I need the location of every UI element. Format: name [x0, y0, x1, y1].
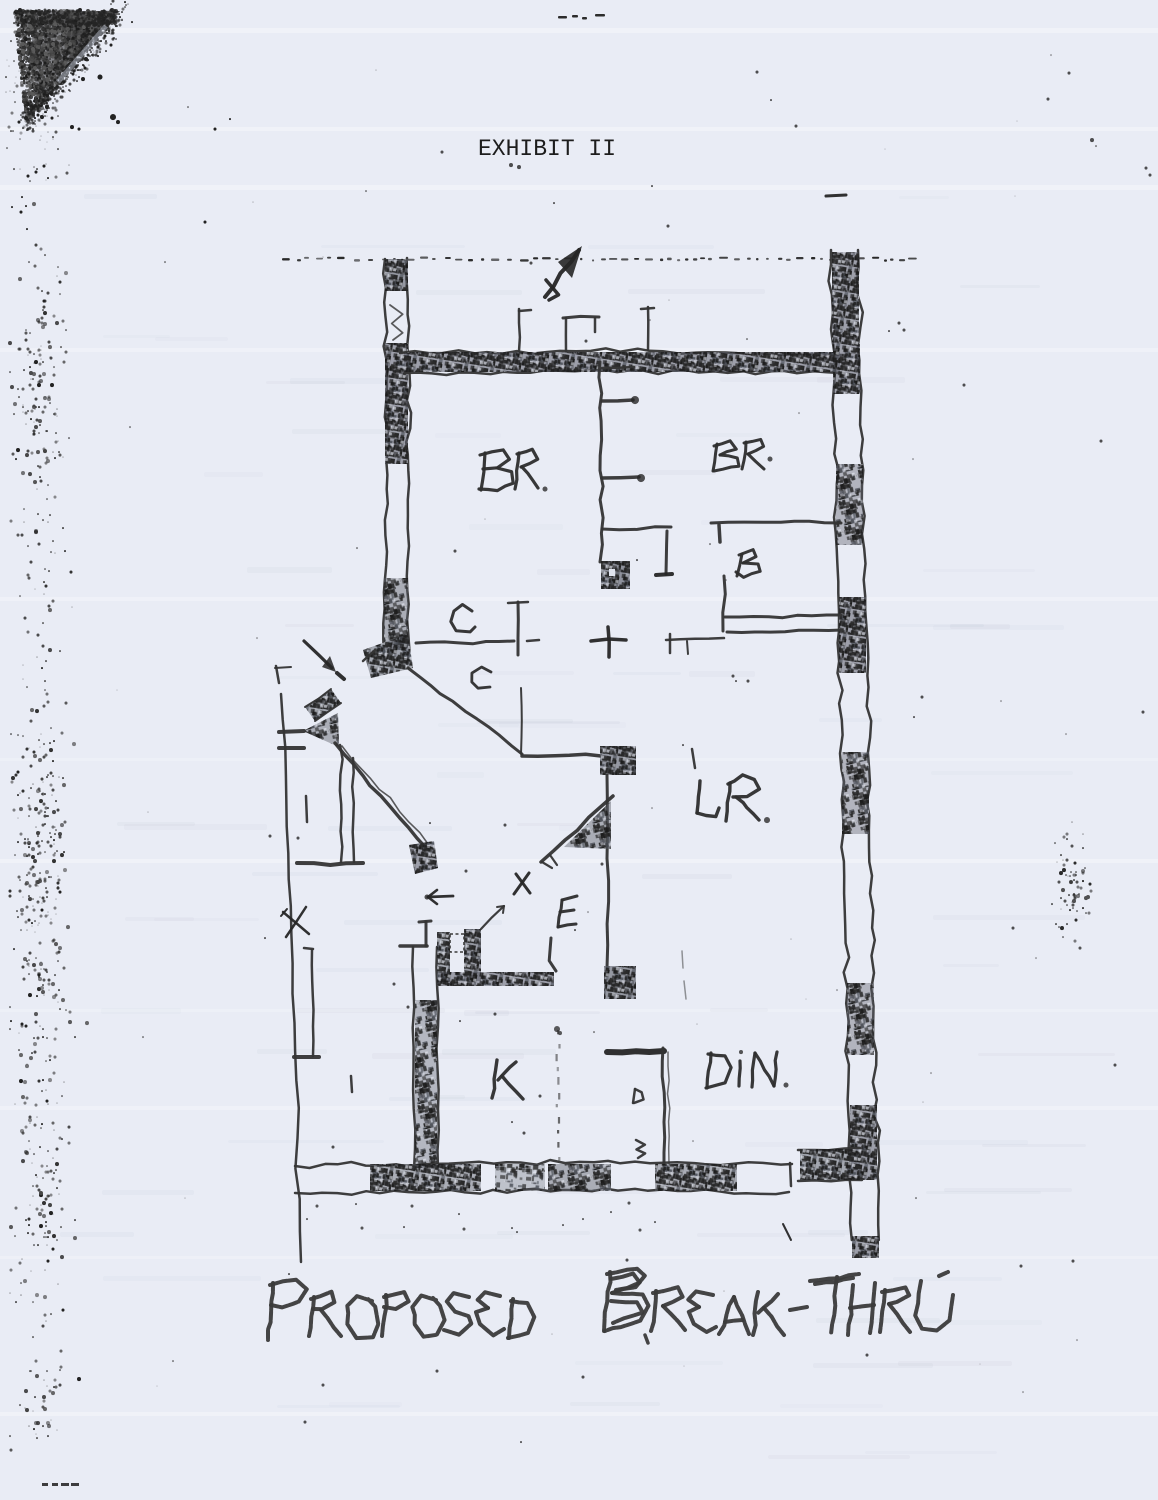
svg-text:EXHIBIT II: EXHIBIT II [478, 136, 616, 162]
